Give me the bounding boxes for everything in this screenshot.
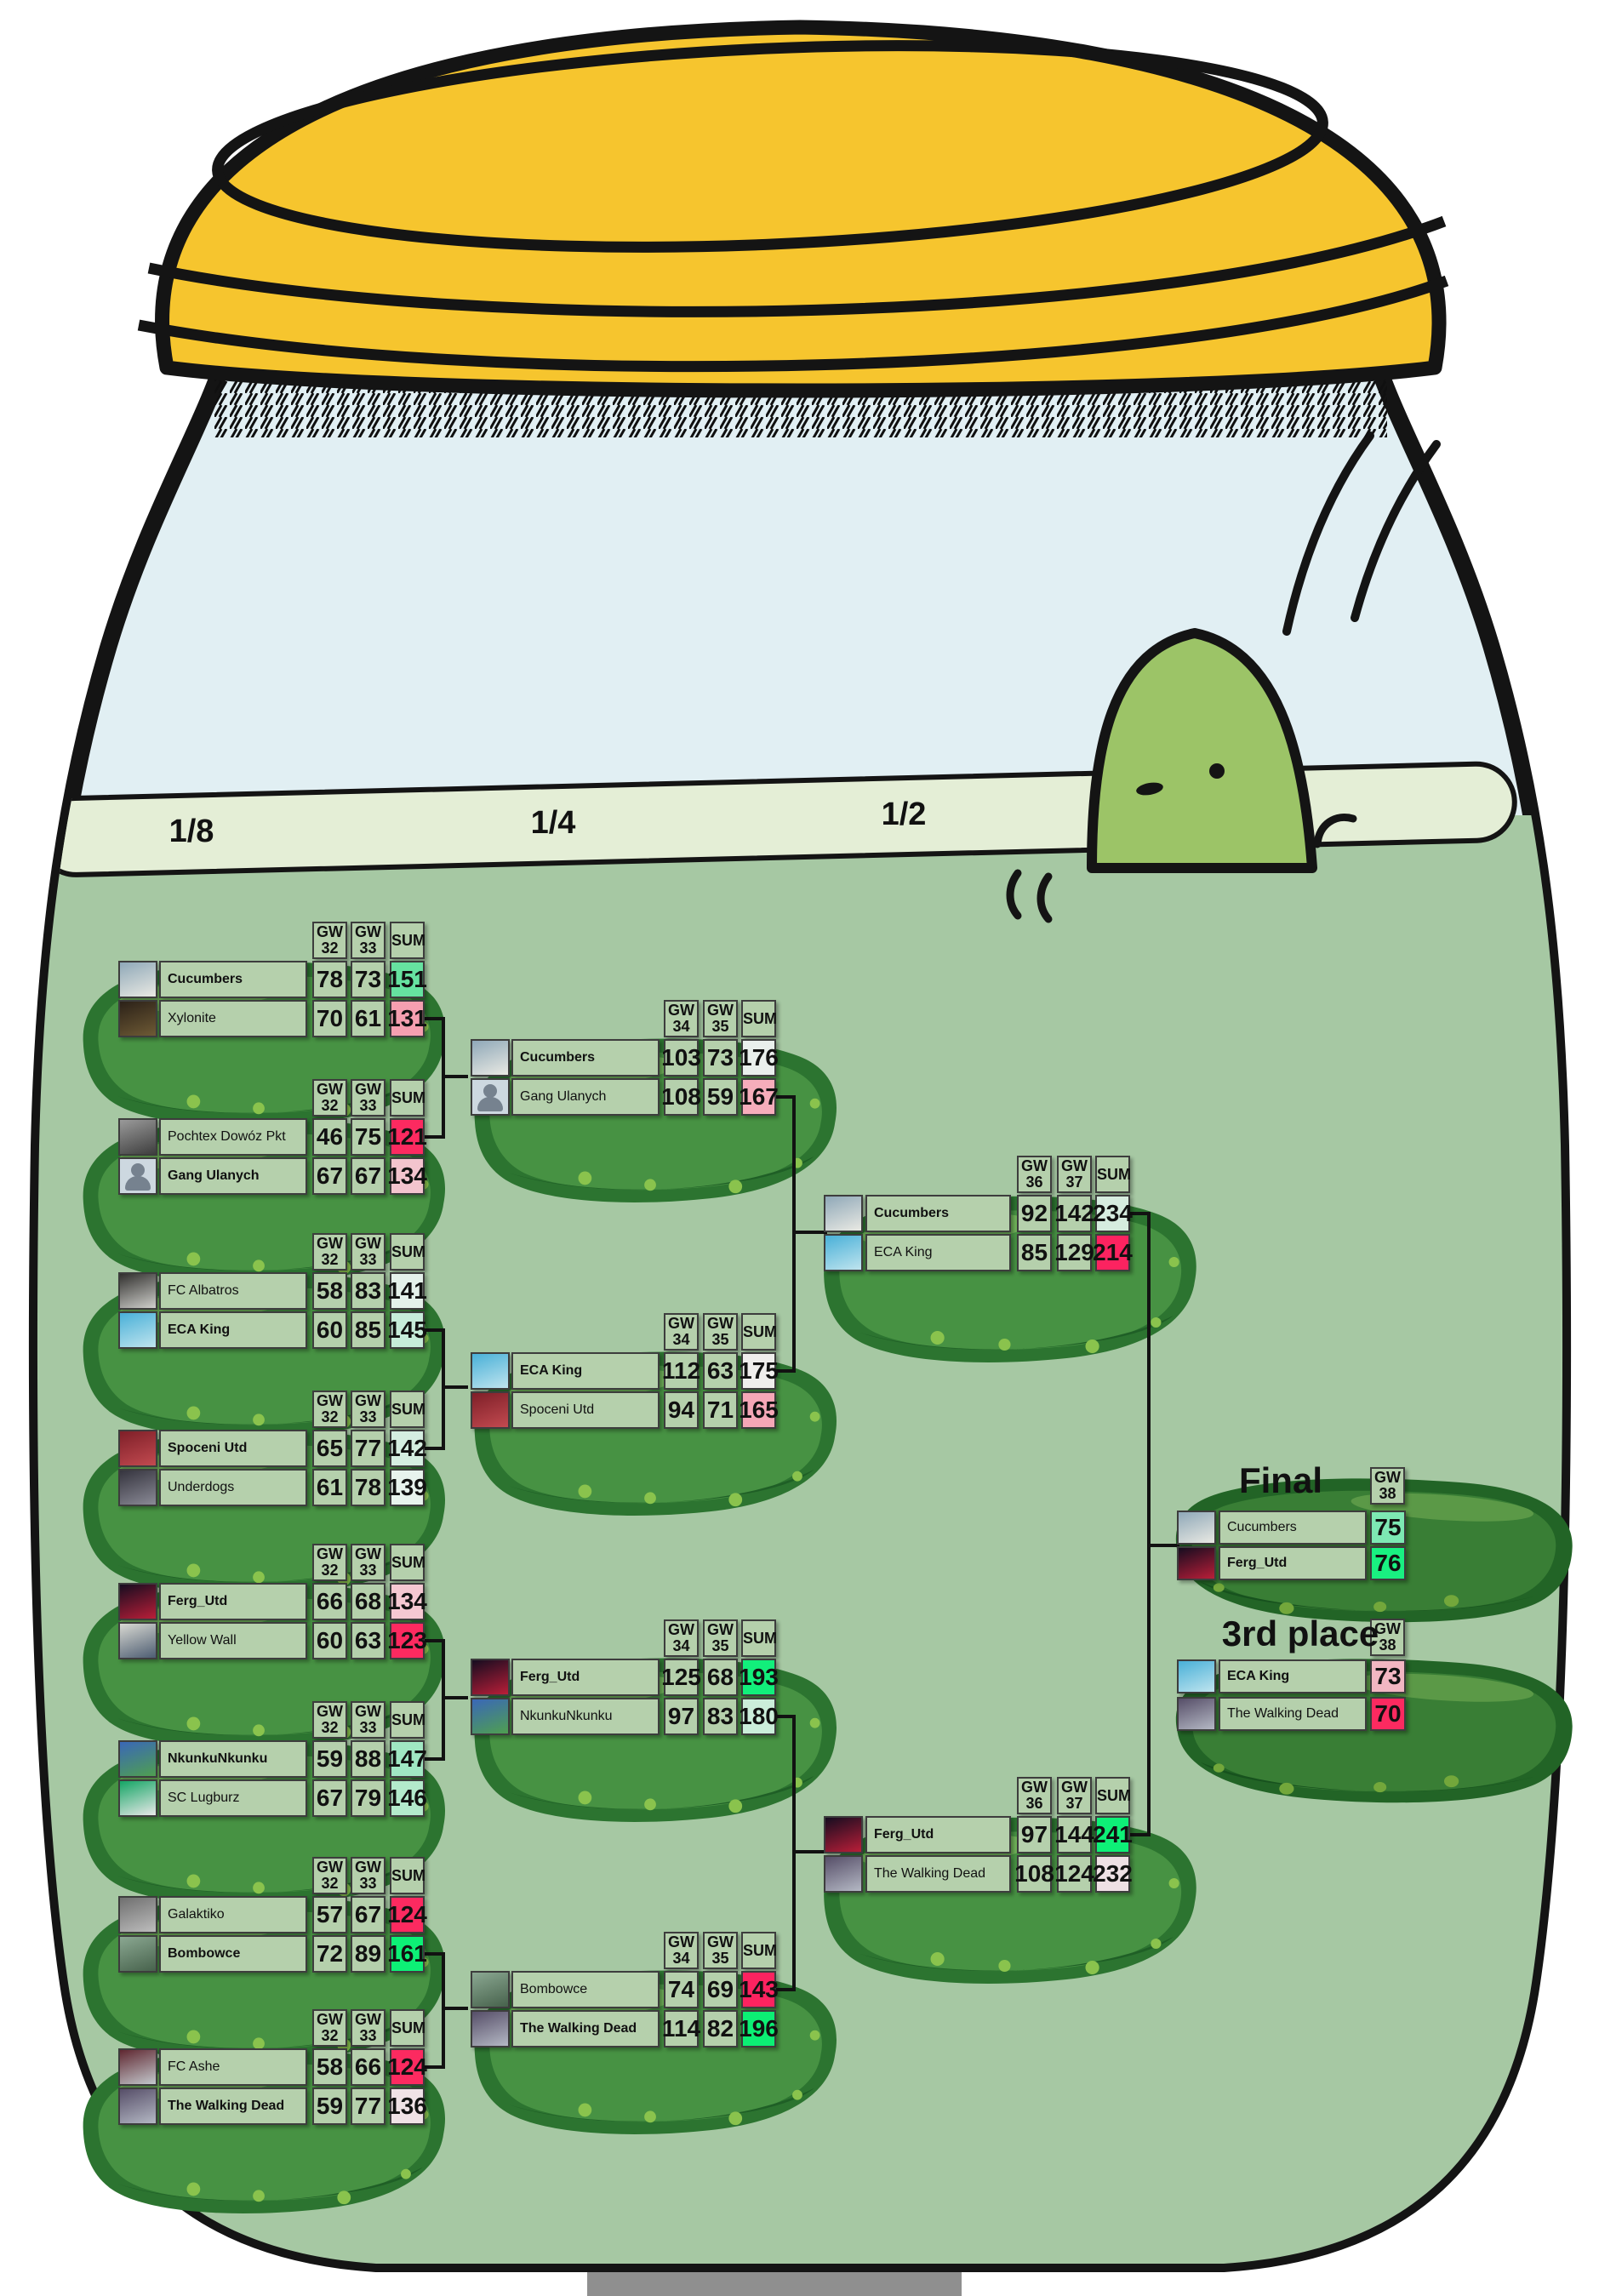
header-text: 32 bbox=[314, 1720, 345, 1736]
sum-score: 214 bbox=[1095, 1234, 1130, 1271]
team-name: Gang Ulanych bbox=[511, 1078, 660, 1116]
sum-score: 75 bbox=[1370, 1511, 1406, 1545]
team-avatar bbox=[471, 1971, 510, 2008]
bracket-connector bbox=[442, 1385, 468, 1389]
sum-header: SUM bbox=[741, 1932, 776, 1969]
header-text: GW bbox=[1059, 1158, 1090, 1174]
gw-score: 59 bbox=[312, 1740, 347, 1778]
gw-score: 72 bbox=[312, 1935, 347, 1973]
header-text: SUM bbox=[743, 1011, 774, 1027]
header-text: 35 bbox=[705, 1019, 736, 1035]
gw-score: 60 bbox=[312, 1622, 347, 1659]
gw-score: 63 bbox=[351, 1622, 385, 1659]
team-name: Cucumbers bbox=[511, 1039, 660, 1077]
sum-score: 196 bbox=[741, 2010, 776, 2048]
header-text: 33 bbox=[352, 1876, 384, 1892]
team-avatar bbox=[118, 1272, 157, 1310]
header-text: GW bbox=[314, 1082, 345, 1098]
gw-score: 68 bbox=[703, 1659, 738, 1696]
sum-score: 167 bbox=[741, 1078, 776, 1116]
sum-score: 146 bbox=[390, 1779, 425, 1817]
header-text: GW bbox=[352, 2012, 384, 2028]
round-label-1-2: 1/2 bbox=[857, 797, 951, 833]
header-text: GW bbox=[1019, 1158, 1050, 1174]
gw-score: 112 bbox=[664, 1352, 699, 1390]
header-text: 33 bbox=[352, 1720, 384, 1736]
bracket-connector bbox=[442, 1075, 468, 1078]
team-name: Spoceni Utd bbox=[159, 1430, 307, 1467]
header-text: GW bbox=[314, 1236, 345, 1252]
team-avatar bbox=[118, 1779, 157, 1817]
sum-score: 73 bbox=[1370, 1659, 1406, 1693]
gw-header: GW34 bbox=[664, 1313, 699, 1351]
gw-score: 78 bbox=[351, 1469, 385, 1506]
header-text: 32 bbox=[314, 940, 345, 957]
header-text: 37 bbox=[1059, 1796, 1090, 1812]
bracket-connector bbox=[442, 1696, 468, 1699]
gw-score: 58 bbox=[312, 1272, 347, 1310]
gw-score: 66 bbox=[312, 1583, 347, 1620]
header-text: 33 bbox=[352, 1098, 384, 1114]
gw-score: 94 bbox=[664, 1391, 699, 1429]
header-text: 36 bbox=[1019, 1174, 1050, 1191]
header-text: 34 bbox=[665, 1019, 697, 1035]
header-text: 37 bbox=[1059, 1174, 1090, 1191]
gw-score: 73 bbox=[703, 1039, 738, 1077]
sum-header: SUM bbox=[390, 1391, 425, 1428]
team-name: ECA King bbox=[159, 1311, 307, 1349]
gw-score: 89 bbox=[351, 1935, 385, 1973]
team-avatar bbox=[118, 1896, 157, 1933]
header-text: SUM bbox=[1097, 1788, 1128, 1804]
team-avatar bbox=[118, 1935, 157, 1973]
team-name: Underdogs bbox=[159, 1469, 307, 1506]
gw-score: 59 bbox=[703, 1078, 738, 1116]
header-text: GW bbox=[1372, 1470, 1403, 1486]
gw-score: 77 bbox=[351, 2088, 385, 2125]
team-avatar bbox=[471, 1659, 510, 1696]
team-avatar bbox=[118, 1311, 157, 1349]
header-text: GW bbox=[1019, 1779, 1050, 1796]
gw-score: 97 bbox=[664, 1698, 699, 1735]
sum-header: SUM bbox=[390, 1701, 425, 1739]
team-name: The Walking Dead bbox=[1219, 1697, 1367, 1731]
header-text: GW bbox=[352, 1859, 384, 1876]
sum-score: 176 bbox=[741, 1039, 776, 1077]
gw-header: GW33 bbox=[351, 1233, 385, 1271]
team-name: Ferg_Utd bbox=[511, 1659, 660, 1696]
gw-header: GW35 bbox=[703, 1000, 738, 1037]
team-avatar bbox=[1177, 1546, 1216, 1580]
team-name: SC Lugburz bbox=[159, 1779, 307, 1817]
gw-header: GW36 bbox=[1017, 1777, 1052, 1814]
header-text: 33 bbox=[352, 2028, 384, 2044]
gw-score: 124 bbox=[1057, 1855, 1092, 1893]
bracket-connector bbox=[442, 1328, 445, 1450]
gw-score: 97 bbox=[1017, 1816, 1052, 1853]
header-text: 32 bbox=[314, 1876, 345, 1892]
gw-score: 59 bbox=[312, 2088, 347, 2125]
header-text: SUM bbox=[743, 1631, 774, 1647]
header-text: GW bbox=[705, 1002, 736, 1019]
header-text: 33 bbox=[352, 1252, 384, 1268]
team-name: Yellow Wall bbox=[159, 1622, 307, 1659]
gw-header: GW35 bbox=[703, 1619, 738, 1657]
header-text: 36 bbox=[1019, 1796, 1050, 1812]
header-text: 32 bbox=[314, 1562, 345, 1579]
sum-header: SUM bbox=[390, 922, 425, 959]
round-label-1-4: 1/4 bbox=[506, 805, 600, 842]
team-name: Ferg_Utd bbox=[865, 1816, 1011, 1853]
gw-score: 92 bbox=[1017, 1195, 1052, 1232]
round-label-1-8: 1/8 bbox=[145, 814, 238, 850]
team-name: ECA King bbox=[511, 1352, 660, 1390]
header-text: GW bbox=[352, 1546, 384, 1562]
team-name: Ferg_Utd bbox=[159, 1583, 307, 1620]
team-avatar bbox=[1177, 1697, 1216, 1731]
gw-score: 83 bbox=[351, 1272, 385, 1310]
header-text: GW bbox=[314, 924, 345, 940]
gw-header: GW33 bbox=[351, 1701, 385, 1739]
team-name: Cucumbers bbox=[1219, 1511, 1367, 1545]
gw-header: GW33 bbox=[351, 922, 385, 959]
header-text: SUM bbox=[743, 1943, 774, 1959]
sum-header: SUM bbox=[1095, 1156, 1130, 1193]
bracket-connector bbox=[792, 1095, 796, 1373]
team-avatar bbox=[118, 1430, 157, 1467]
header-text: 35 bbox=[705, 1332, 736, 1348]
header-text: 33 bbox=[352, 1409, 384, 1425]
gw-score: 61 bbox=[351, 1000, 385, 1037]
gw-score: 142 bbox=[1057, 1195, 1092, 1232]
sum-score: 142 bbox=[390, 1430, 425, 1467]
round-title-final: Final bbox=[1191, 1460, 1370, 1501]
team-avatar bbox=[118, 1583, 157, 1620]
sum-score: 124 bbox=[390, 1896, 425, 1933]
team-name: NkunkuNkunku bbox=[511, 1698, 660, 1735]
header-text: GW bbox=[665, 1002, 697, 1019]
header-text: 33 bbox=[352, 940, 384, 957]
team-avatar bbox=[118, 961, 157, 998]
team-avatar bbox=[471, 1698, 510, 1735]
header-text: 32 bbox=[314, 1098, 345, 1114]
header-text: 32 bbox=[314, 1252, 345, 1268]
team-name: NkunkuNkunku bbox=[159, 1740, 307, 1778]
gw-header: GW35 bbox=[703, 1932, 738, 1969]
team-name: Bombowce bbox=[511, 1971, 660, 2008]
header-text: GW bbox=[352, 1236, 384, 1252]
gw-score: 67 bbox=[351, 1896, 385, 1933]
team-avatar bbox=[824, 1855, 863, 1893]
team-name: ECA King bbox=[865, 1234, 1011, 1271]
gw-header: GW33 bbox=[351, 1391, 385, 1428]
gw-header: GW33 bbox=[351, 1079, 385, 1117]
gw-score: 70 bbox=[312, 1000, 347, 1037]
header-text: GW bbox=[352, 1393, 384, 1409]
sum-header: SUM bbox=[741, 1619, 776, 1657]
gw-score: 75 bbox=[351, 1118, 385, 1156]
sum-score: 124 bbox=[390, 2048, 425, 2086]
gw-header: GW37 bbox=[1057, 1777, 1092, 1814]
gw-header: GW32 bbox=[312, 2009, 347, 2047]
sum-header: SUM bbox=[741, 1000, 776, 1037]
gw-score: 125 bbox=[664, 1659, 699, 1696]
team-name: Spoceni Utd bbox=[511, 1391, 660, 1429]
header-text: GW bbox=[1059, 1779, 1090, 1796]
sum-score: 143 bbox=[741, 1971, 776, 2008]
bracket: GW32GW33SUMCucumbers7873151Xylonite70611… bbox=[0, 0, 1599, 2296]
header-text: GW bbox=[314, 1546, 345, 1562]
sum-score: 161 bbox=[390, 1935, 425, 1973]
gw-score: 58 bbox=[312, 2048, 347, 2086]
gw-score: 83 bbox=[703, 1698, 738, 1735]
gw-score: 73 bbox=[351, 961, 385, 998]
team-avatar bbox=[118, 2088, 157, 2125]
sum-score: 165 bbox=[741, 1391, 776, 1429]
sum-header: SUM bbox=[390, 1544, 425, 1581]
team-name: Cucumbers bbox=[159, 961, 307, 998]
gw-score: 68 bbox=[351, 1583, 385, 1620]
team-avatar bbox=[471, 1078, 510, 1116]
header-text: 34 bbox=[665, 1950, 697, 1967]
sum-header: SUM bbox=[390, 1857, 425, 1894]
team-name: FC Ashe bbox=[159, 2048, 307, 2086]
sum-header: SUM bbox=[1095, 1777, 1130, 1814]
sum-score: 123 bbox=[390, 1622, 425, 1659]
sum-score: 136 bbox=[390, 2088, 425, 2125]
sum-header: SUM bbox=[390, 2009, 425, 2047]
sum-score: 234 bbox=[1095, 1195, 1130, 1232]
gw-score: 71 bbox=[703, 1391, 738, 1429]
bracket-connector bbox=[442, 2007, 468, 2010]
gw-header: GW32 bbox=[312, 922, 347, 959]
team-avatar bbox=[471, 1391, 510, 1429]
gw-score: 67 bbox=[312, 1157, 347, 1195]
header-text: GW bbox=[705, 1622, 736, 1638]
gw-header: GW33 bbox=[351, 1544, 385, 1581]
team-avatar bbox=[824, 1816, 863, 1853]
team-avatar bbox=[471, 2010, 510, 2048]
gw-score: 85 bbox=[351, 1311, 385, 1349]
gw-header: GW35 bbox=[703, 1313, 738, 1351]
header-text: SUM bbox=[391, 2020, 423, 2036]
gw-header: GW32 bbox=[312, 1701, 347, 1739]
header-text: 35 bbox=[705, 1638, 736, 1654]
header-text: SUM bbox=[391, 933, 423, 949]
sum-score: 131 bbox=[390, 1000, 425, 1037]
gw-score: 74 bbox=[664, 1971, 699, 2008]
team-avatar bbox=[118, 1622, 157, 1659]
team-avatar bbox=[118, 1157, 157, 1195]
gw-score: 57 bbox=[312, 1896, 347, 1933]
header-text: 35 bbox=[705, 1950, 736, 1967]
header-text: SUM bbox=[391, 1555, 423, 1571]
header-text: SUM bbox=[1097, 1167, 1128, 1183]
sum-header: SUM bbox=[390, 1079, 425, 1117]
sum-score: 147 bbox=[390, 1740, 425, 1778]
bracket-connector bbox=[442, 1639, 445, 1761]
bracket-connector bbox=[792, 1850, 827, 1853]
sum-score: 175 bbox=[741, 1352, 776, 1390]
pickle-jar-tournament-bracket: 1/8 1/4 1/2 GW32GW33SUMCucumbers7873151X… bbox=[0, 0, 1599, 2296]
team-name: Galaktiko bbox=[159, 1896, 307, 1933]
gw-score: 69 bbox=[703, 1971, 738, 2008]
bracket-connector bbox=[792, 1231, 827, 1234]
team-avatar bbox=[824, 1234, 863, 1271]
header-text: SUM bbox=[391, 1712, 423, 1728]
gw-score: 67 bbox=[312, 1779, 347, 1817]
header-text: GW bbox=[314, 1704, 345, 1720]
sum-score: 139 bbox=[390, 1469, 425, 1506]
header-text: GW bbox=[314, 1859, 345, 1876]
sum-score: 134 bbox=[390, 1157, 425, 1195]
bracket-connector bbox=[1147, 1544, 1179, 1547]
header-text: GW bbox=[352, 1704, 384, 1720]
header-text: SUM bbox=[391, 1090, 423, 1106]
gw-header: GW34 bbox=[664, 1619, 699, 1657]
bracket-connector bbox=[442, 1952, 445, 2069]
header-text: 33 bbox=[352, 1562, 384, 1579]
header-text: 34 bbox=[665, 1638, 697, 1654]
team-name: Ferg_Utd bbox=[1219, 1546, 1367, 1580]
gw-score: 61 bbox=[312, 1469, 347, 1506]
header-text: GW bbox=[705, 1934, 736, 1950]
gw-score: 82 bbox=[703, 2010, 738, 2048]
round-title-third: 3rd place bbox=[1207, 1613, 1394, 1654]
team-name: The Walking Dead bbox=[159, 2088, 307, 2125]
bracket-connector bbox=[1147, 1212, 1151, 1836]
team-name: FC Albatros bbox=[159, 1272, 307, 1310]
header-text: SUM bbox=[391, 1402, 423, 1418]
gw-header: GW32 bbox=[312, 1391, 347, 1428]
gw-score: 85 bbox=[1017, 1234, 1052, 1271]
team-avatar bbox=[1177, 1511, 1216, 1545]
gw-score: 103 bbox=[664, 1039, 699, 1077]
header-text: GW bbox=[352, 924, 384, 940]
team-name: Bombowce bbox=[159, 1935, 307, 1973]
gw-score: 114 bbox=[664, 2010, 699, 2048]
header-text: GW bbox=[705, 1316, 736, 1332]
header-text: SUM bbox=[743, 1324, 774, 1340]
gw-header: GW34 bbox=[664, 1932, 699, 1969]
team-name: Xylonite bbox=[159, 1000, 307, 1037]
team-name: The Walking Dead bbox=[511, 2010, 660, 2048]
team-avatar bbox=[471, 1039, 510, 1077]
gw-score: 78 bbox=[312, 961, 347, 998]
header-text: GW bbox=[314, 1393, 345, 1409]
sum-score: 180 bbox=[741, 1698, 776, 1735]
team-avatar bbox=[824, 1195, 863, 1232]
gw-score: 63 bbox=[703, 1352, 738, 1390]
header-text: GW bbox=[314, 2012, 345, 2028]
team-avatar bbox=[118, 1000, 157, 1037]
gw-header: GW32 bbox=[312, 1233, 347, 1271]
gw-score: 144 bbox=[1057, 1816, 1092, 1853]
team-name: The Walking Dead bbox=[865, 1855, 1011, 1893]
sum-header: SUM bbox=[390, 1233, 425, 1271]
gw-score: 67 bbox=[351, 1157, 385, 1195]
sum-score: 151 bbox=[390, 961, 425, 998]
gw-score: 46 bbox=[312, 1118, 347, 1156]
sum-score: 70 bbox=[1370, 1697, 1406, 1731]
header-text: GW bbox=[665, 1934, 697, 1950]
gw-score: 108 bbox=[664, 1078, 699, 1116]
gw-header: GW33 bbox=[351, 1857, 385, 1894]
gw-header: GW38 bbox=[1370, 1467, 1405, 1505]
team-avatar bbox=[118, 1469, 157, 1506]
gw-header: GW36 bbox=[1017, 1156, 1052, 1193]
sum-score: 193 bbox=[741, 1659, 776, 1696]
gw-score: 60 bbox=[312, 1311, 347, 1349]
sum-score: 134 bbox=[390, 1583, 425, 1620]
team-name: Gang Ulanych bbox=[159, 1157, 307, 1195]
sum-score: 141 bbox=[390, 1272, 425, 1310]
header-text: GW bbox=[352, 1082, 384, 1098]
gw-score: 65 bbox=[312, 1430, 347, 1467]
sum-score: 76 bbox=[1370, 1546, 1406, 1580]
gw-header: GW32 bbox=[312, 1544, 347, 1581]
team-avatar bbox=[471, 1352, 510, 1390]
gw-header: GW32 bbox=[312, 1857, 347, 1894]
header-text: GW bbox=[665, 1316, 697, 1332]
team-avatar bbox=[118, 2048, 157, 2086]
gw-score: 108 bbox=[1017, 1855, 1052, 1893]
gw-header: GW34 bbox=[664, 1000, 699, 1037]
sum-header: SUM bbox=[741, 1313, 776, 1351]
sum-score: 232 bbox=[1095, 1855, 1130, 1893]
team-avatar bbox=[118, 1740, 157, 1778]
gw-score: 77 bbox=[351, 1430, 385, 1467]
gw-header: GW32 bbox=[312, 1079, 347, 1117]
header-text: 32 bbox=[314, 2028, 345, 2044]
team-name: ECA King bbox=[1219, 1659, 1367, 1693]
header-text: SUM bbox=[391, 1868, 423, 1884]
gw-header: GW33 bbox=[351, 2009, 385, 2047]
gw-header: GW37 bbox=[1057, 1156, 1092, 1193]
sum-score: 145 bbox=[390, 1311, 425, 1349]
team-name: Pochtex Dowóz Pkt bbox=[159, 1118, 307, 1156]
header-text: 38 bbox=[1372, 1486, 1403, 1502]
header-text: 34 bbox=[665, 1332, 697, 1348]
header-text: 32 bbox=[314, 1409, 345, 1425]
sum-score: 121 bbox=[390, 1118, 425, 1156]
gw-score: 79 bbox=[351, 1779, 385, 1817]
sum-score: 241 bbox=[1095, 1816, 1130, 1853]
header-text: GW bbox=[665, 1622, 697, 1638]
team-avatar bbox=[118, 1118, 157, 1156]
gw-score: 129 bbox=[1057, 1234, 1092, 1271]
team-avatar bbox=[1177, 1659, 1216, 1693]
team-name: Cucumbers bbox=[865, 1195, 1011, 1232]
gw-score: 88 bbox=[351, 1740, 385, 1778]
gw-score: 66 bbox=[351, 2048, 385, 2086]
header-text: SUM bbox=[391, 1244, 423, 1260]
